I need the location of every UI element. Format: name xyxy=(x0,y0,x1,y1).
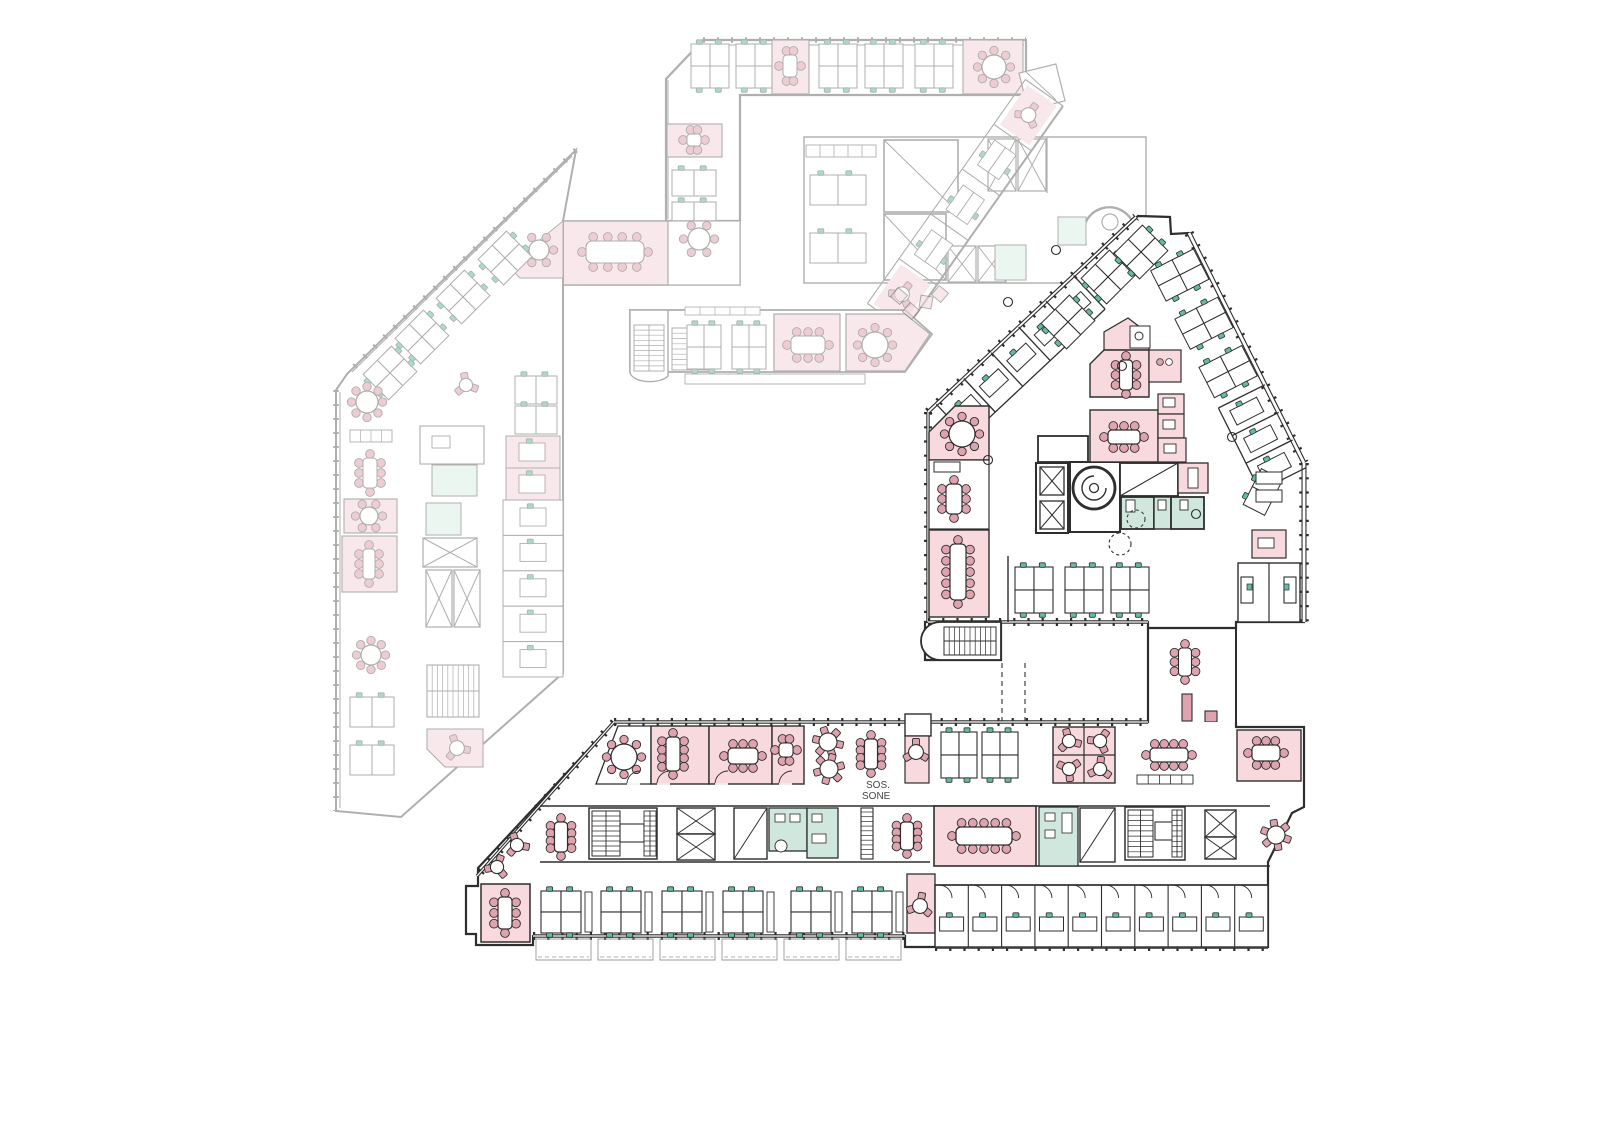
svg-text:SONE: SONE xyxy=(862,791,891,802)
svg-text:SOS.: SOS. xyxy=(866,780,890,791)
